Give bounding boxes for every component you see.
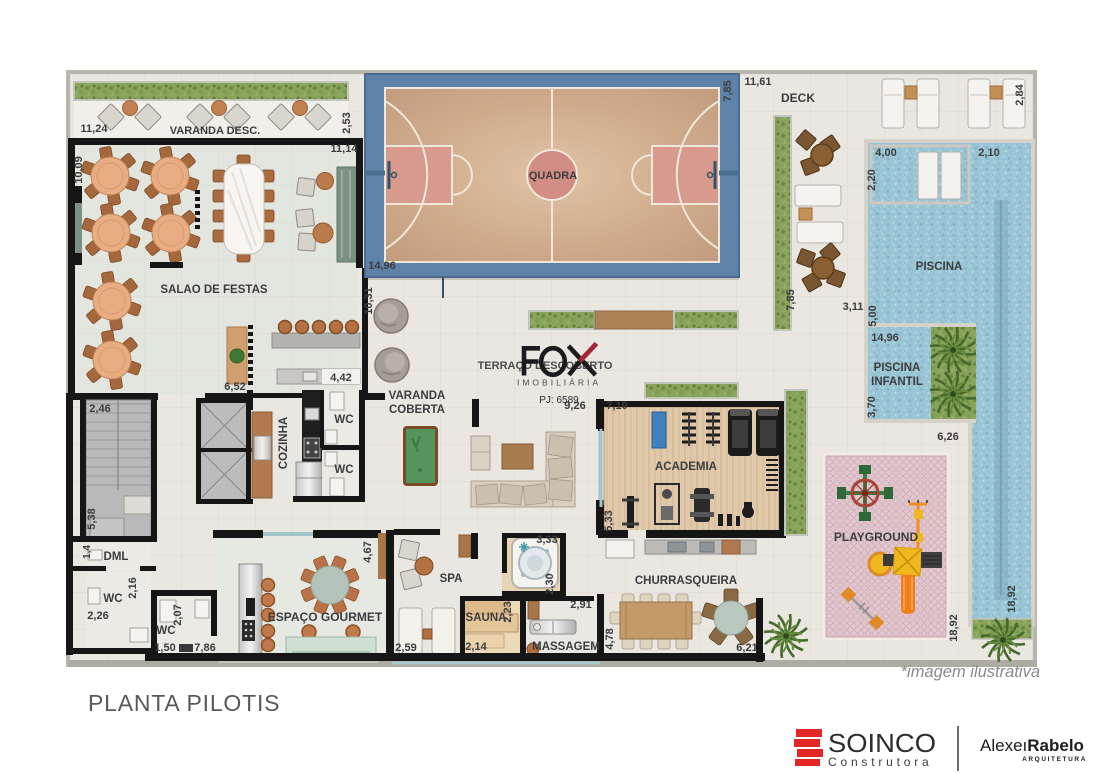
svg-text:18,92: 18,92 [948,614,960,642]
svg-text:1,4: 1,4 [82,545,93,559]
svg-text:2,10: 2,10 [978,147,999,159]
svg-text:2,14: 2,14 [465,641,487,653]
svg-text:4,00: 4,00 [875,147,896,159]
svg-text:2,20: 2,20 [866,169,878,190]
svg-text:WC: WC [334,464,353,476]
svg-text:DML: DML [104,551,129,563]
svg-text:4,42: 4,42 [330,372,351,384]
svg-text:7,85: 7,85 [785,289,797,310]
svg-text:QUADRA: QUADRA [529,170,577,182]
svg-text:2,91: 2,91 [570,599,591,611]
svg-text:*imagem ilustrativa: *imagem ilustrativa [901,663,1040,681]
svg-text:WC: WC [334,414,353,426]
svg-text:18,92: 18,92 [1006,585,1018,613]
svg-text:3,33: 3,33 [536,534,557,546]
svg-text:2,46: 2,46 [89,403,110,415]
svg-text:ESPAÇO GOURMET: ESPAÇO GOURMET [268,610,383,624]
svg-text:7,10: 7,10 [606,400,627,412]
svg-text:DECK: DECK [781,91,815,105]
svg-text:6,21: 6,21 [736,642,757,654]
svg-text:4,67: 4,67 [362,541,374,562]
svg-text:CHURRASQUEIRA: CHURRASQUEIRA [635,575,737,587]
svg-text:6,52: 6,52 [224,381,245,393]
svg-text:PJ: 6589: PJ: 6589 [539,395,579,406]
svg-text:SAUNA: SAUNA [466,612,507,624]
svg-text:SOINCO: SOINCO [828,728,936,758]
svg-text:COZINHA: COZINHA [278,417,290,469]
svg-text:6,26: 6,26 [937,431,958,443]
svg-text:SPA: SPA [440,573,463,585]
svg-text:2,53: 2,53 [341,112,353,133]
svg-text:3,70: 3,70 [866,396,878,417]
svg-text:3,11: 3,11 [843,301,864,313]
svg-text:PLAYGROUND: PLAYGROUND [834,530,919,544]
svg-text:2,16: 2,16 [127,577,139,598]
svg-text:IMOBILIÁRIA: IMOBILIÁRIA [517,378,601,388]
svg-text:INFANTIL: INFANTIL [871,376,923,388]
svg-text:2,59: 2,59 [395,642,416,654]
svg-text:11,24: 11,24 [81,123,109,135]
svg-text:2,30: 2,30 [544,573,556,594]
svg-text:11,14: 11,14 [331,143,359,155]
svg-text:AlexeıRabelo: AlexeıRabelo [980,736,1084,755]
svg-text:14,96: 14,96 [368,260,396,272]
svg-text:PLANTA PILOTIS: PLANTA PILOTIS [88,690,280,716]
svg-text:10,31: 10,31 [363,287,375,315]
svg-text:ARQUITETURA: ARQUITETURA [1022,756,1087,763]
svg-text:14,96: 14,96 [871,332,899,344]
svg-text:PISCINA: PISCINA [916,261,963,273]
svg-text:5,38: 5,38 [86,508,98,529]
svg-text:SALAO DE FESTAS: SALAO DE FESTAS [160,284,267,296]
svg-text:MASSAGEM: MASSAGEM [532,641,600,653]
svg-text:Construtora: Construtora [828,755,933,769]
svg-text:PISCINA: PISCINA [874,362,921,374]
svg-text:7,85: 7,85 [722,80,734,101]
svg-text:10,09: 10,09 [73,156,85,184]
svg-text:COBERTA: COBERTA [389,404,445,416]
svg-text:ACADEMIA: ACADEMIA [655,461,717,473]
svg-text:VARANDA: VARANDA [389,390,446,402]
svg-text:2,07: 2,07 [172,604,184,625]
svg-text:11,61: 11,61 [745,76,772,88]
svg-text:2,23: 2,23 [502,601,514,622]
svg-text:WC: WC [103,593,122,605]
svg-text:5,33: 5,33 [603,510,615,531]
svg-text:4,78: 4,78 [604,628,616,649]
svg-text:2,84: 2,84 [1014,83,1026,105]
svg-text:2,26: 2,26 [87,610,108,622]
svg-text:7,86: 7,86 [194,642,215,654]
svg-text:5,00: 5,00 [867,305,879,326]
svg-text:1,50: 1,50 [154,642,175,654]
svg-text:WC: WC [156,625,175,637]
svg-text:VARANDA DESC.: VARANDA DESC. [170,125,260,137]
